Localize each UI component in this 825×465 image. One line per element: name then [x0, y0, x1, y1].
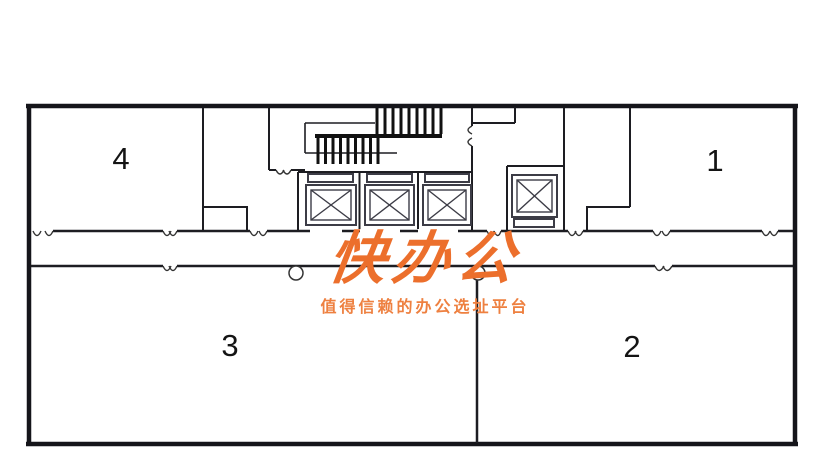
elevator-shaft-icon-2 — [365, 174, 414, 225]
room-label-2: 2 — [602, 331, 662, 362]
elevator-shaft-icon-1 — [306, 174, 356, 225]
floor-plan-page: 4 1 3 2 快办公 值得信赖的办公选址平台 — [0, 0, 825, 465]
room-label-1: 1 — [685, 145, 745, 176]
room-label-3: 3 — [200, 330, 260, 361]
elevator-shaft-icon-4 — [512, 175, 557, 227]
corridor-walls — [31, 231, 793, 443]
room-label-4: 4 — [91, 143, 151, 174]
stairs-icon — [305, 108, 442, 164]
floor-plan-drawing — [0, 0, 825, 465]
elevator-bank — [298, 172, 472, 231]
column-circles — [289, 266, 485, 280]
elevator-shaft-icon-3 — [423, 174, 471, 225]
